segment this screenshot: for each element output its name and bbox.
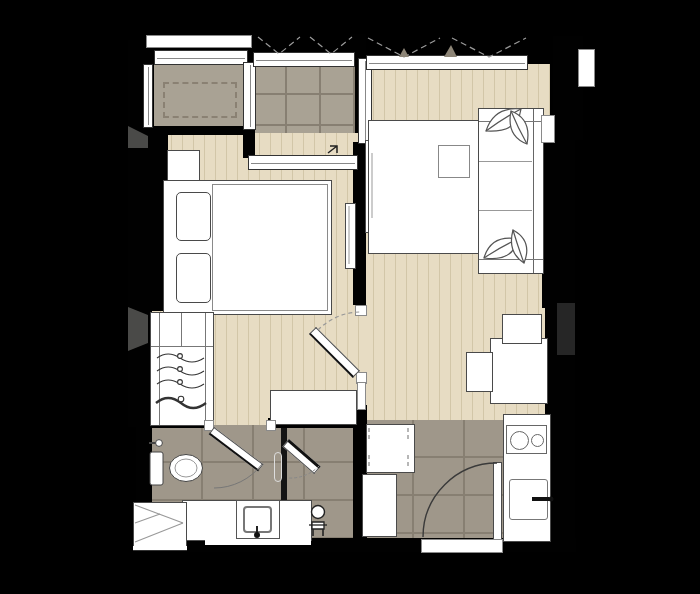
hob-burner-large — [510, 431, 529, 450]
sofa — [478, 108, 544, 274]
dining-chair-left — [466, 352, 493, 392]
sofa-armrest-bottom — [479, 259, 543, 260]
sofa-cushion-line — [479, 161, 532, 162]
ac-condenser-dashed-outline — [163, 82, 237, 118]
bedroom-balcony-window — [248, 155, 358, 170]
refrigerator — [362, 474, 397, 537]
wall-kitchen-right — [548, 415, 575, 540]
wardrobe-frame-line — [205, 313, 206, 425]
shaft-x-box — [133, 502, 187, 547]
wall-living-right — [542, 140, 575, 308]
side-table-tray — [438, 145, 470, 178]
shower-bracket — [274, 452, 282, 482]
wall-bedroom-left — [128, 133, 168, 311]
floor-plan — [0, 0, 700, 594]
ledge-top-window — [154, 50, 248, 65]
balcony-top-window — [253, 52, 355, 67]
dining-table — [490, 338, 548, 404]
kitchen-faucet — [532, 497, 549, 501]
shadow-right — [557, 303, 575, 355]
wardrobe-shelf-line — [151, 346, 213, 347]
bedroom-door-jamb-strip — [357, 382, 366, 410]
ledge-outer-sill — [146, 35, 252, 48]
wardrobe — [150, 312, 214, 426]
sofa-side-shelf — [541, 115, 555, 143]
bedroom-door-jamb-top — [355, 305, 367, 316]
ledge-balcony-window — [243, 62, 256, 130]
shaft-sill — [133, 546, 187, 551]
bed-pillow-2 — [176, 253, 211, 303]
hob-burner-small — [531, 434, 544, 447]
vanity-threshold — [205, 540, 311, 545]
living-top-window — [366, 55, 528, 70]
washing-machine — [366, 424, 415, 473]
wardrobe-divider — [181, 313, 182, 346]
wall-ledge-bottom — [148, 126, 248, 135]
bed-pillow-1 — [176, 192, 211, 241]
dining-chair-top — [502, 314, 542, 344]
vanity-basin — [243, 506, 272, 533]
chaise-daybed — [368, 120, 482, 254]
wall-post-balcony — [243, 126, 255, 158]
sofa-cushion-line — [479, 210, 532, 211]
bedroom-console — [270, 390, 357, 425]
bath-door-jamb-right — [266, 420, 276, 431]
bedroom-tv — [345, 203, 356, 269]
top-right-notch — [578, 49, 595, 87]
sofa-armrest-top — [479, 121, 543, 122]
ledge-left-window — [143, 64, 153, 128]
wardrobe-frame-line — [159, 313, 160, 425]
entrance-threshold — [421, 539, 503, 553]
entrance-door-leaf — [493, 462, 502, 541]
bed-mattress — [212, 184, 328, 311]
